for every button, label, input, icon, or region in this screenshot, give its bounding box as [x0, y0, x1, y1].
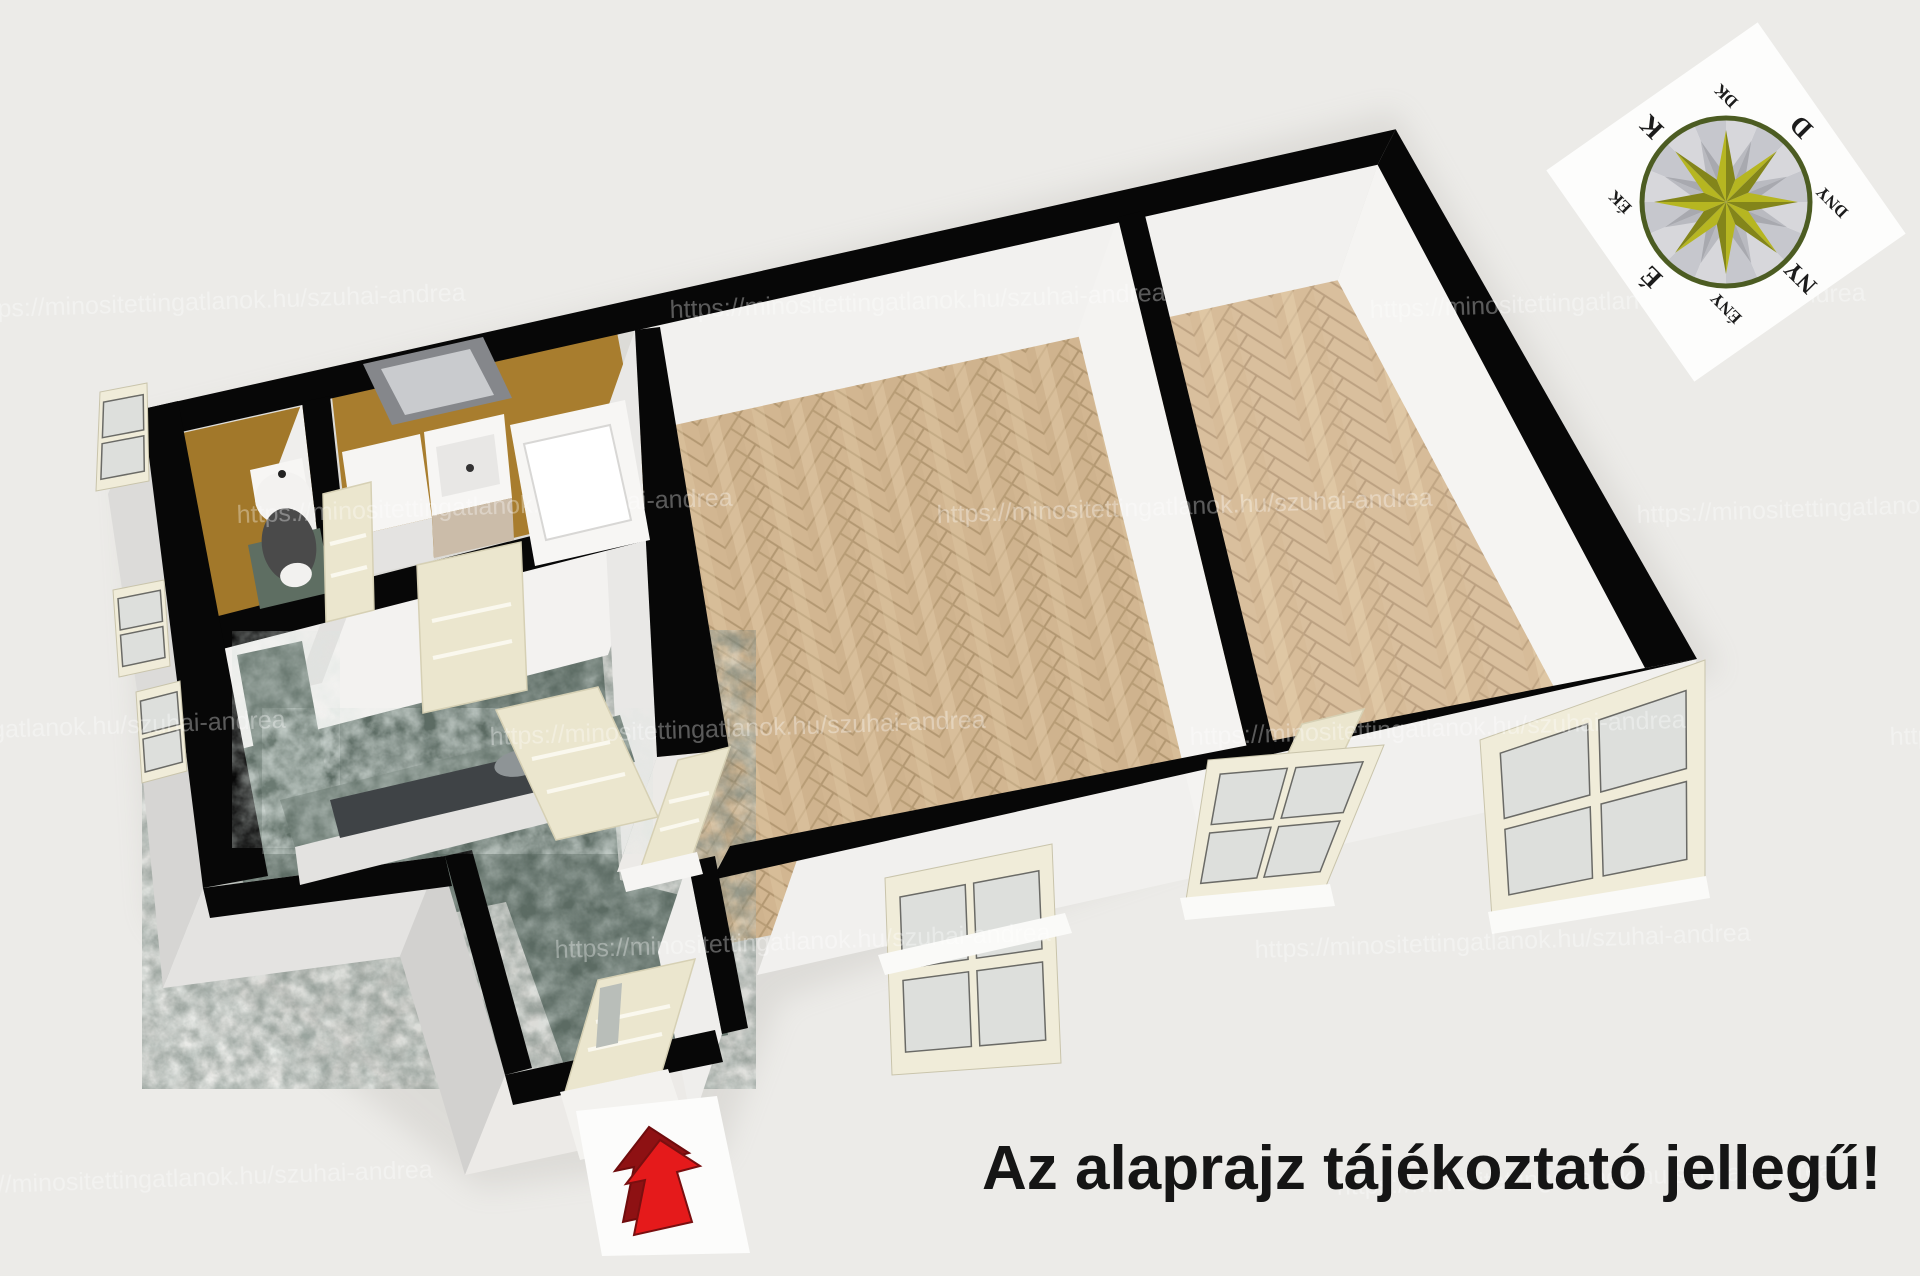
svg-text:Az alaprajz tájékoztató jelleg: Az alaprajz tájékoztató jellegű! — [982, 1134, 1881, 1203]
